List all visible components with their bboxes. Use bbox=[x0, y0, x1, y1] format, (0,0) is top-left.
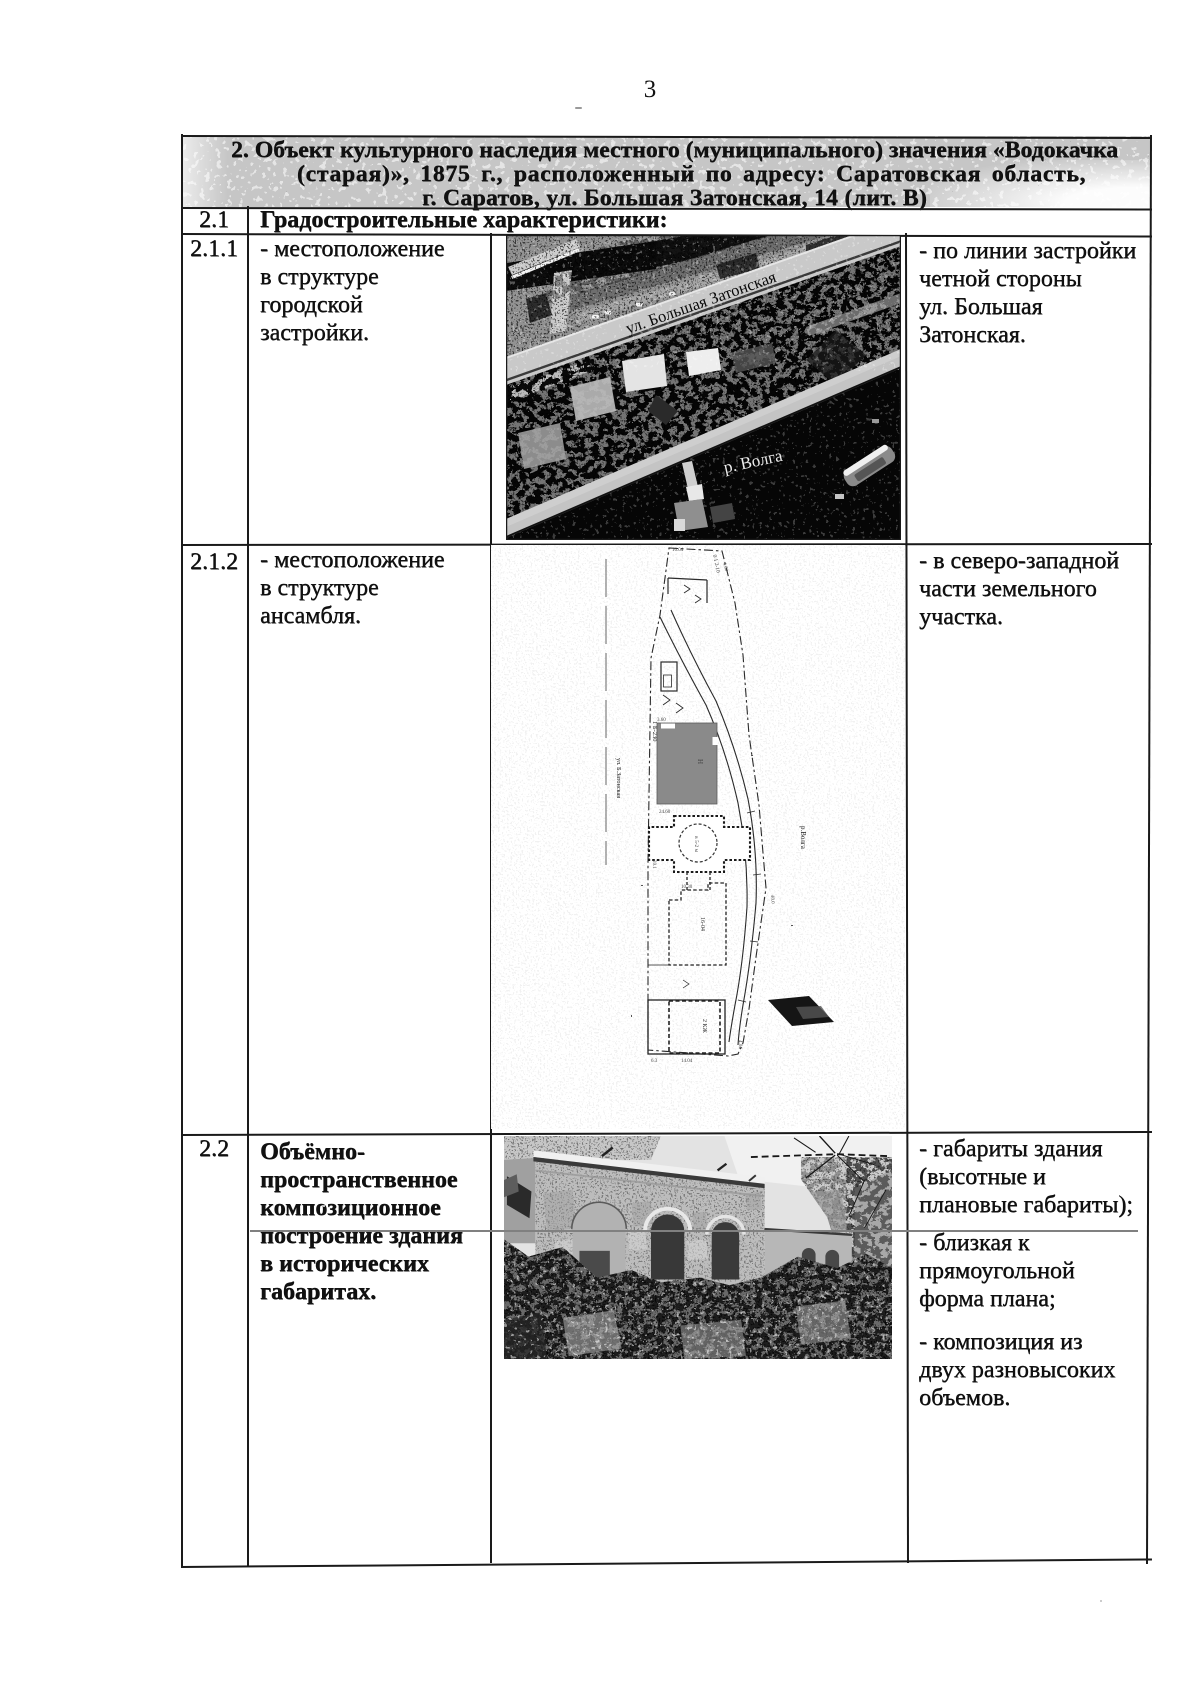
svg-text:в 5-2 м: в 5-2 м bbox=[693, 836, 699, 853]
svg-text:6.3: 6.3 bbox=[651, 1059, 658, 1064]
svg-text:48.0: 48.0 bbox=[769, 895, 775, 905]
svg-text:3.60: 3.60 bbox=[657, 718, 666, 723]
svg-text:2 КЖ: 2 КЖ bbox=[701, 1019, 707, 1034]
svg-text:16-04: 16-04 bbox=[699, 917, 705, 931]
svg-text:10.30: 10.30 bbox=[681, 885, 693, 890]
svg-text:ул. Б.Затонская: ул. Б.Затонская bbox=[615, 758, 622, 798]
svg-text:16.04: 16.04 bbox=[672, 548, 684, 553]
svg-text:1 Б-230: 1 Б-230 bbox=[651, 721, 658, 742]
svg-text:24.60: 24.60 bbox=[659, 810, 671, 815]
svg-text:14.04: 14.04 bbox=[681, 1059, 693, 1064]
svg-text:р.Волга: р.Волга bbox=[799, 826, 807, 850]
svg-text:Н: Н bbox=[696, 759, 704, 764]
svg-text:20.1: 20.1 bbox=[651, 860, 656, 869]
svg-text:4.04: 4.04 bbox=[737, 1040, 742, 1049]
